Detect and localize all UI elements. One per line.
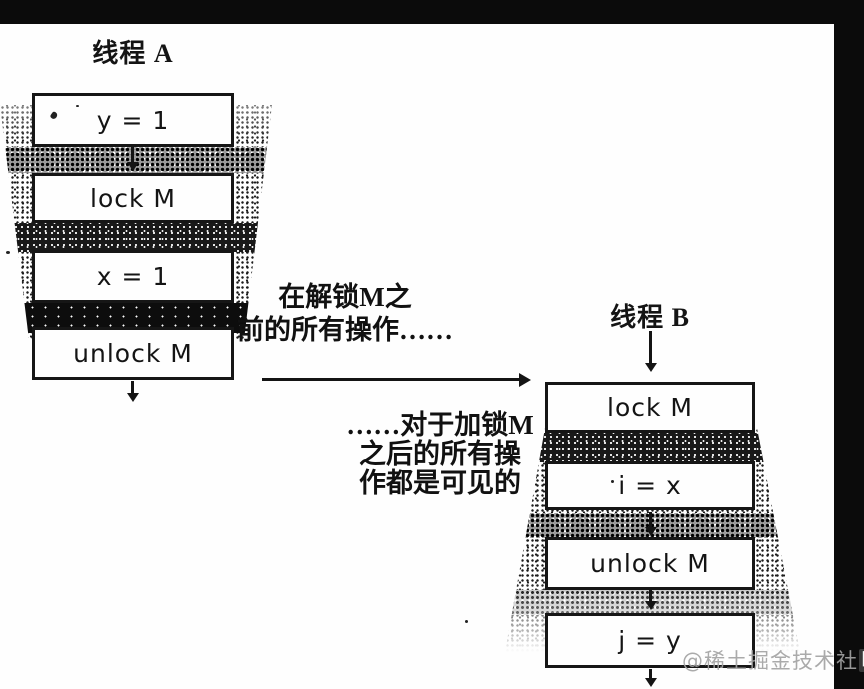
box-a-y-equals-1: y = 1 (32, 93, 234, 147)
scan-speck (465, 620, 468, 623)
box-b-unlock-m-label: unlock M (590, 549, 710, 578)
scan-speck (76, 105, 79, 107)
annotation-after-lock-line2: 之后的所有操 (330, 440, 550, 469)
funnel-band-dark (505, 433, 800, 462)
scan-black-bar-right (834, 0, 864, 689)
box-b-lock-m-label: lock M (607, 393, 693, 422)
funnel-band-dark (0, 223, 274, 252)
annotation-after-lock: ……对于加锁M 之后的所有操 作都是可见的 (330, 411, 550, 498)
arrow-b-ix-to-unlockm (649, 512, 652, 528)
arrow-b-entry (649, 331, 652, 364)
happens-before-arrow (262, 378, 520, 381)
scan-speck (93, 44, 96, 47)
box-b-i-equals-x-label: i = x (618, 471, 682, 500)
arrow-a-unlockm-down (131, 381, 134, 394)
box-a-lock-m: lock M (32, 173, 234, 223)
box-a-unlock-m-label: unlock M (73, 339, 193, 368)
annotation-after-lock-line3: 作都是可见的 (330, 469, 550, 498)
scan-speck (6, 251, 10, 254)
box-b-unlock-m: unlock M (545, 537, 755, 590)
watermark-badge: 区 (859, 649, 864, 672)
thread-a-title: 线程 A (33, 33, 233, 70)
box-a-unlock-m: unlock M (32, 327, 234, 380)
box-a-x-equals-1-label: x = 1 (97, 262, 170, 291)
scan-black-strip-top (0, 0, 864, 24)
box-a-lock-m-label: lock M (90, 184, 176, 213)
scan-speck (611, 480, 614, 483)
annotation-after-lock-line1: ……对于加锁M (330, 411, 550, 440)
box-b-i-equals-x: i = x (545, 461, 755, 510)
watermark: @稀土掘金技术社区 (682, 645, 864, 675)
arrow-a-y1-to-lockm (131, 147, 134, 163)
arrow-b-jy-down (649, 669, 652, 679)
box-b-lock-m: lock M (545, 382, 755, 433)
watermark-handle: @稀土掘金技术社 (682, 645, 858, 675)
annotation-before-unlock-line1: 在解锁M之 (228, 281, 462, 314)
thread-b-title: 线程 B (550, 297, 750, 334)
box-a-x-equals-1: x = 1 (32, 250, 234, 303)
scanned-diagram-page: 线程 A y = 1 lock M x = 1 unlock M 在解锁M之 前… (0, 0, 864, 689)
box-b-j-equals-y-label: j = y (618, 626, 682, 655)
annotation-before-unlock: 在解锁M之 前的所有操作…… (228, 281, 462, 347)
annotation-before-unlock-line2: 前的所有操作…… (228, 314, 462, 347)
arrow-b-unlockm-to-jy (649, 590, 652, 602)
box-a-y-equals-1-label: y = 1 (97, 106, 170, 135)
